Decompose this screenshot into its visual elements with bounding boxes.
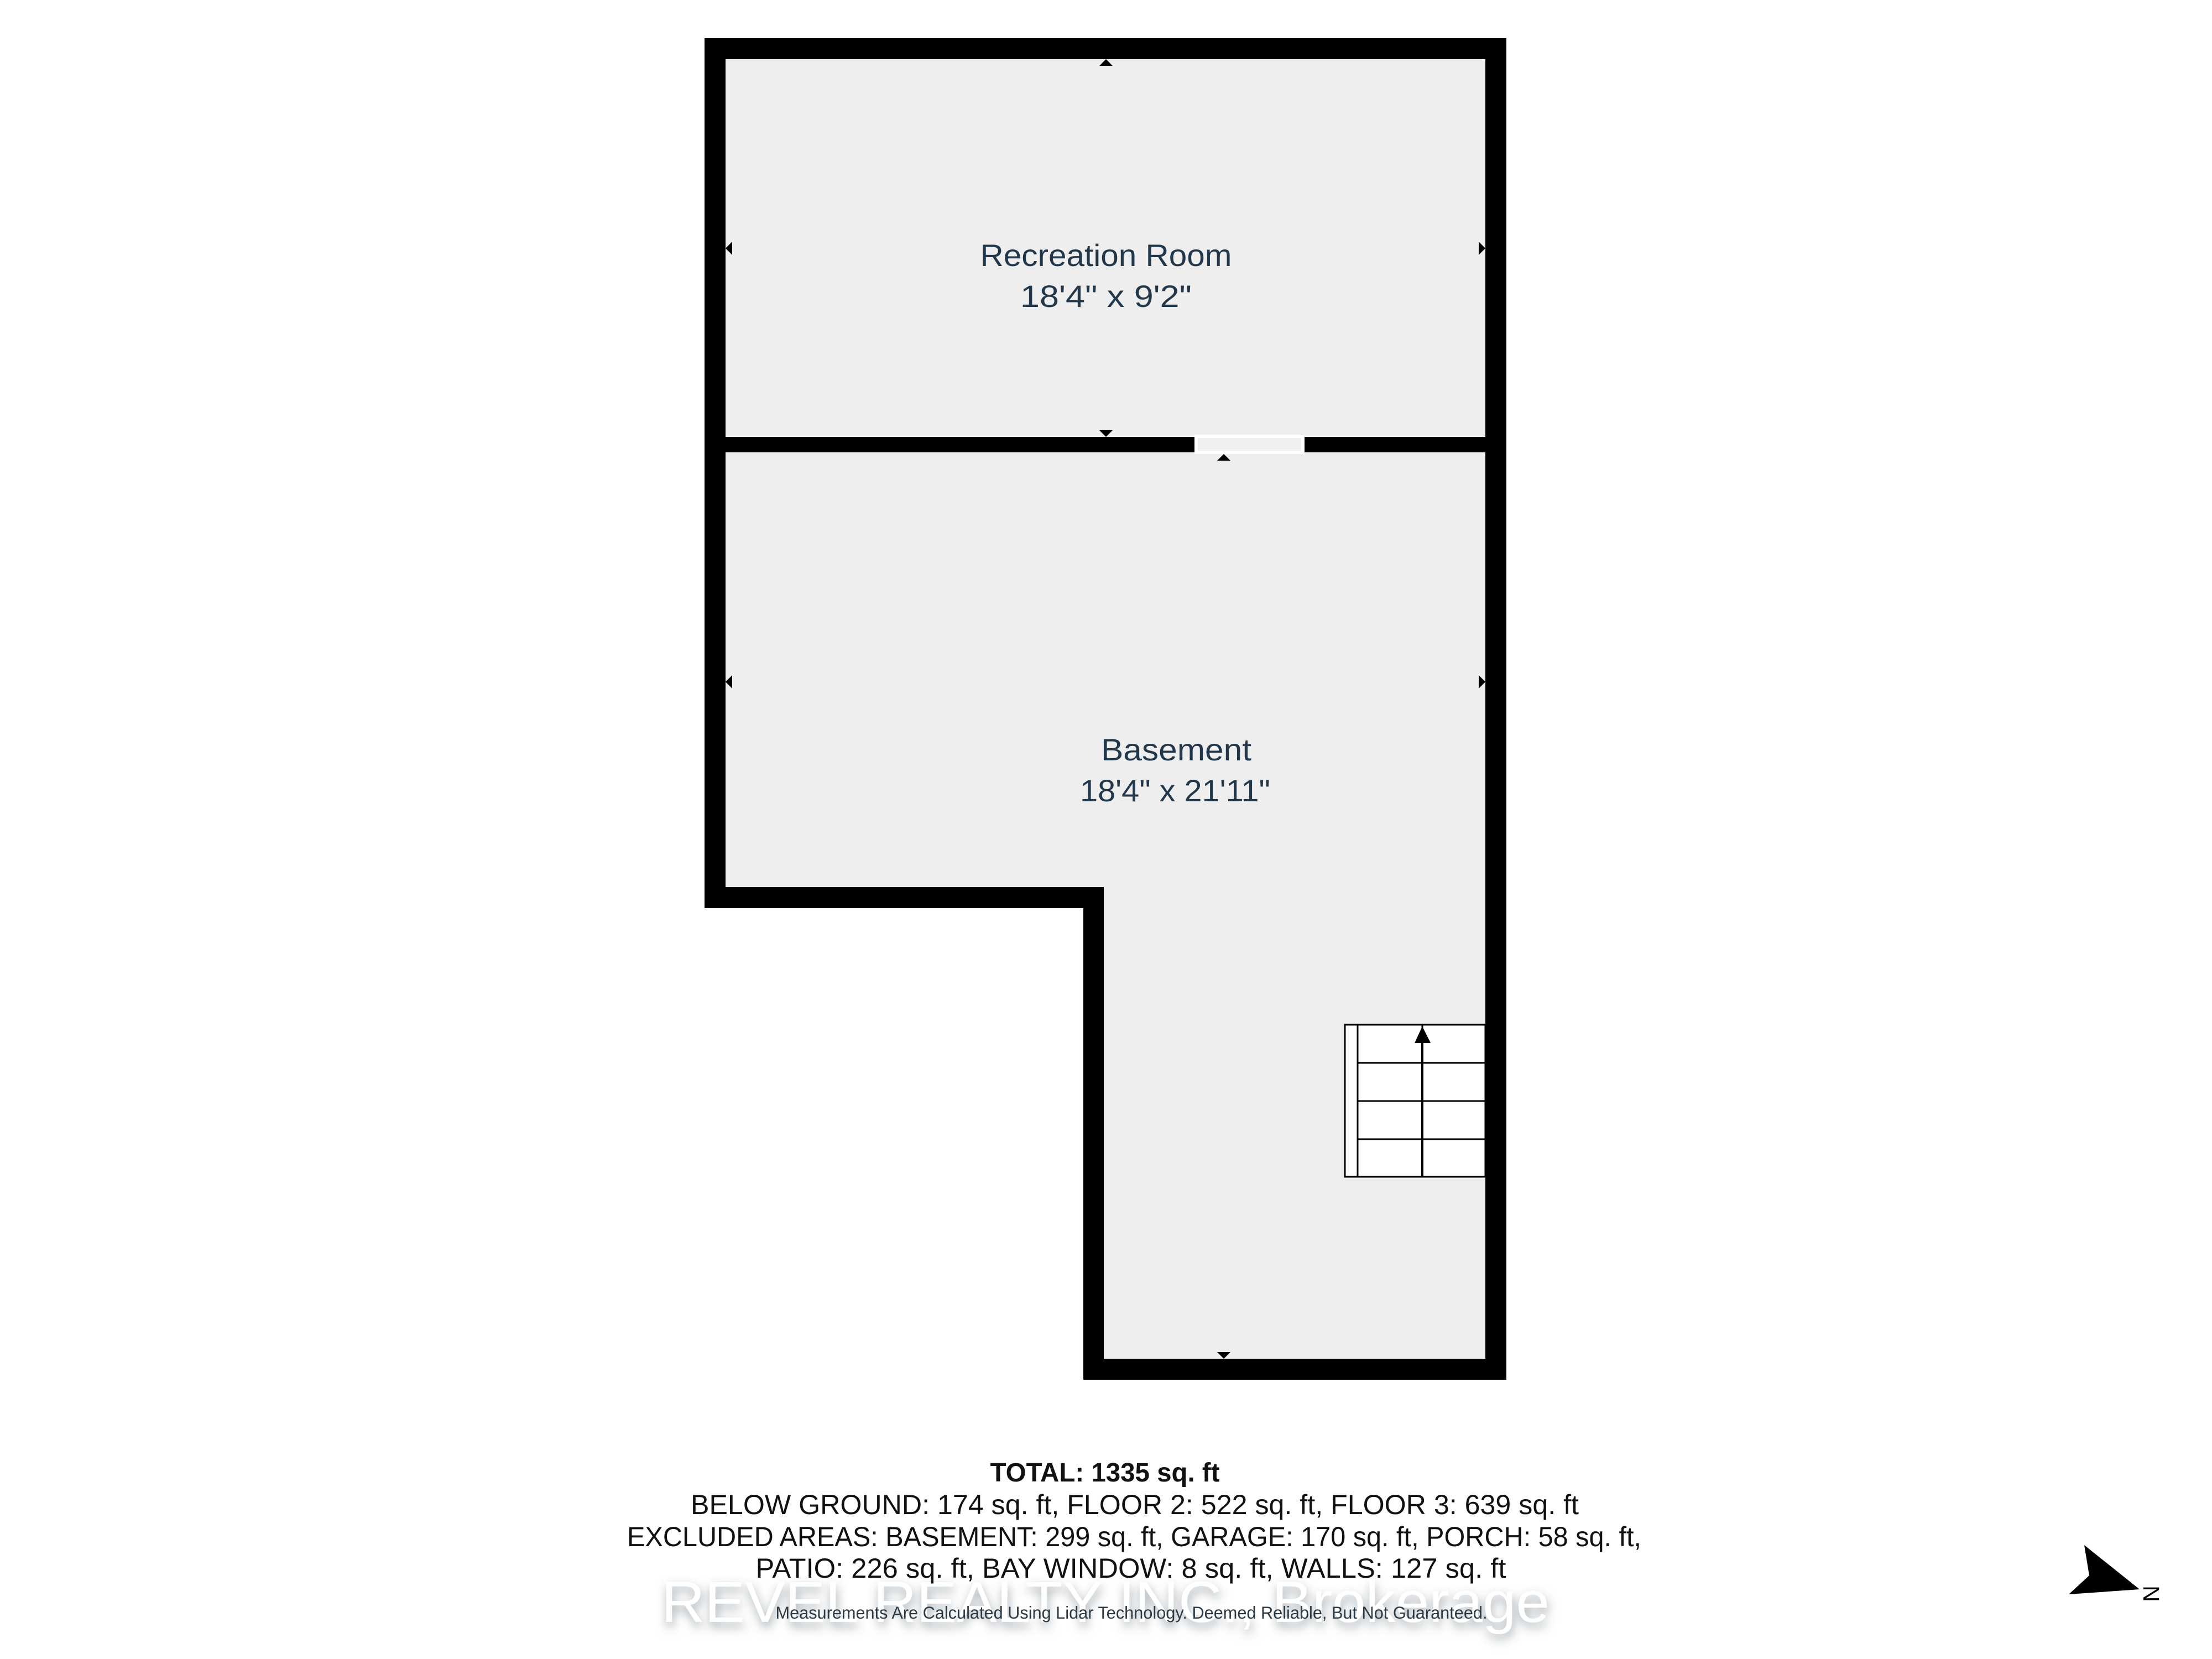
svg-text:Basement: Basement bbox=[1101, 732, 1251, 767]
svg-text:EXCLUDED AREAS: BASEMENT: 299: EXCLUDED AREAS: BASEMENT: 299 sq. ft, GA… bbox=[627, 1521, 1641, 1552]
svg-text:18'4" x 9'2": 18'4" x 9'2" bbox=[1020, 279, 1192, 314]
svg-text:N: N bbox=[2138, 1585, 2164, 1602]
svg-text:BELOW GROUND: 174 sq. ft, FLOO: BELOW GROUND: 174 sq. ft, FLOOR 2: 522 s… bbox=[691, 1489, 1579, 1520]
svg-text:18'4" x 21'11": 18'4" x 21'11" bbox=[1080, 773, 1270, 808]
svg-text:TOTAL: 1335 sq. ft: TOTAL: 1335 sq. ft bbox=[990, 1458, 1220, 1488]
svg-text:PATIO: 226 sq. ft, BAY WINDOW:: PATIO: 226 sq. ft, BAY WINDOW: 8 sq. ft,… bbox=[756, 1553, 1506, 1584]
svg-text:Recreation Room: Recreation Room bbox=[980, 238, 1232, 273]
svg-text:Measurements Are Calculated Us: Measurements Are Calculated Using Lidar … bbox=[776, 1603, 1488, 1623]
